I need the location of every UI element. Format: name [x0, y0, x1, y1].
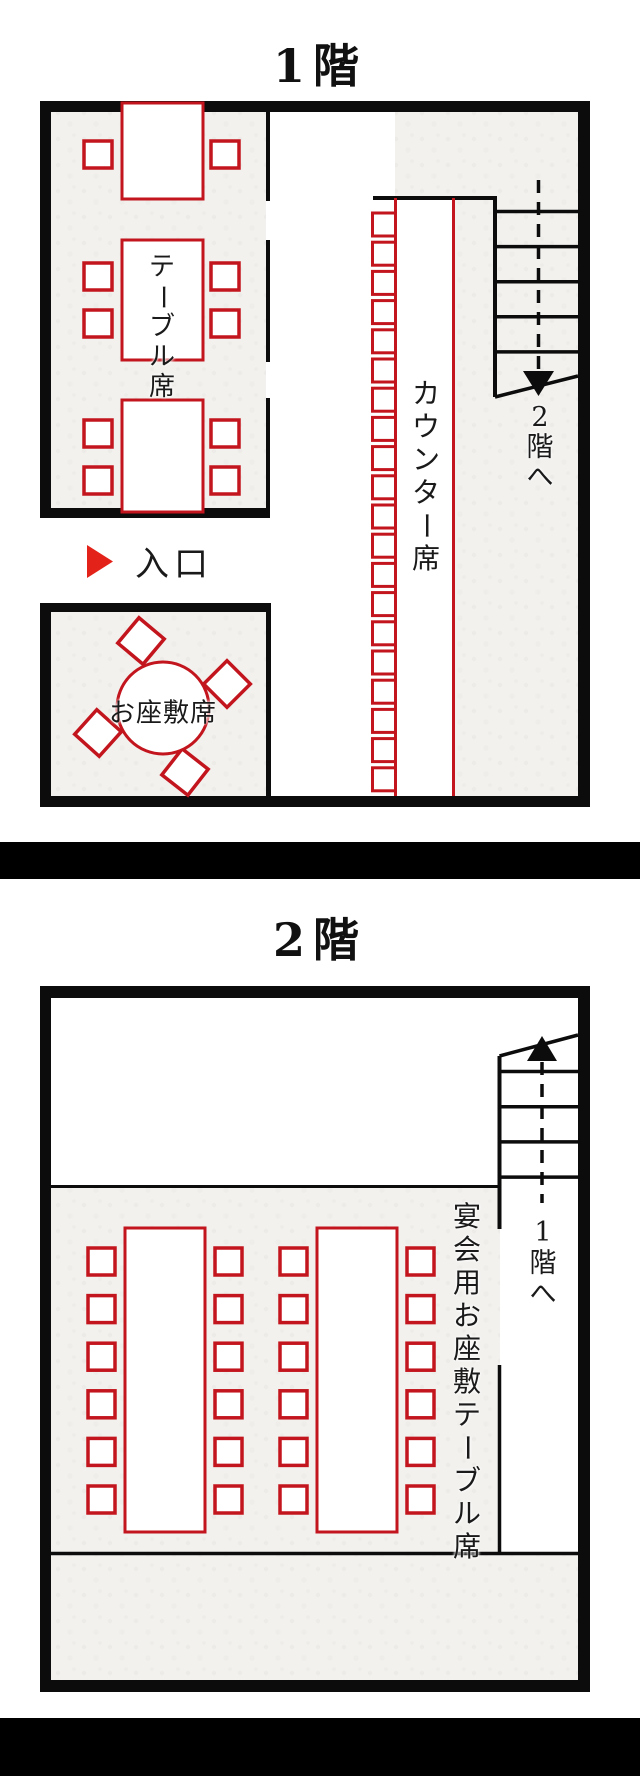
chair [211, 467, 239, 494]
chair [84, 141, 112, 168]
to-first-floor-label: 1階へ [525, 1217, 560, 1310]
dining-table [122, 103, 203, 199]
chair [215, 1296, 242, 1323]
counter-seat [373, 622, 396, 645]
tatami-seats-label: お座敷席 [109, 693, 217, 730]
chair [211, 420, 239, 447]
banquet-table [125, 1228, 205, 1532]
counter-seat [373, 651, 396, 674]
table-seats-label: テーブル席 [145, 252, 179, 402]
chair [88, 1391, 115, 1418]
floorplan-canvas [0, 0, 640, 1776]
chair [84, 263, 112, 290]
counter-seat [373, 388, 396, 411]
floor2-plan [40, 986, 590, 1692]
chair [88, 1248, 115, 1275]
chair [280, 1391, 307, 1418]
floor2-bottom-strip [51, 1555, 578, 1680]
chair [88, 1296, 115, 1323]
floor1-wall-right [578, 101, 590, 807]
entrance-label: 入口 [135, 537, 213, 586]
floor1-wall-bottom [40, 796, 590, 807]
chair [84, 310, 112, 337]
counter-seat [373, 505, 396, 528]
chair [280, 1343, 307, 1370]
tatami-room-top-wall [40, 603, 271, 612]
dining-table [122, 400, 203, 512]
chair [407, 1486, 434, 1513]
counter-seat [373, 447, 396, 470]
counter-seat [373, 271, 396, 294]
floor1-wall-left-upper [40, 101, 51, 518]
counter-seats-label: カウンター席 [408, 377, 444, 575]
floor1-wall-left-lower [40, 603, 51, 807]
counter-seat [373, 417, 396, 440]
chair [88, 1343, 115, 1370]
counter-seat [373, 739, 396, 762]
counter-seat [373, 242, 396, 265]
chair [407, 1343, 434, 1370]
chair [84, 420, 112, 447]
counter-seat [373, 563, 396, 586]
floor2-title: 2階 [0, 904, 640, 970]
chair [88, 1438, 115, 1465]
chair [407, 1248, 434, 1275]
banquet-table [317, 1228, 397, 1532]
floor2-wall-left [40, 986, 51, 1692]
banquet-tatami-label: 宴会用お座敷テーブル席 [449, 1200, 485, 1563]
footer-bar: ※図はイメージです。 [0, 1718, 640, 1776]
counter-seat [373, 213, 396, 236]
chair [215, 1486, 242, 1513]
counter-seat [373, 709, 396, 732]
counter-seat [373, 534, 396, 557]
chair [407, 1296, 434, 1323]
counter-seat [373, 593, 396, 616]
counter-seat [373, 359, 396, 382]
counter-seat [373, 330, 396, 353]
chair [211, 141, 239, 168]
chair [280, 1438, 307, 1465]
chair [211, 263, 239, 290]
chair [280, 1248, 307, 1275]
chair [211, 310, 239, 337]
restaurant-floorplan: 1階 テーブル席 カウンター席 2階へ 入口 お座敷席 2階 宴会用お座敷テーブ… [0, 0, 640, 1776]
floor1-title: 1階 [0, 30, 640, 96]
chair [215, 1248, 242, 1275]
chair [407, 1391, 434, 1418]
counter-seat [373, 680, 396, 703]
counter-seat [373, 476, 396, 499]
floor-divider-bar [0, 842, 640, 879]
chair [280, 1296, 307, 1323]
floor2-wall-bottom [40, 1680, 590, 1692]
tatami-room-right-wall [266, 609, 271, 799]
chair [407, 1438, 434, 1465]
counter-seat [373, 301, 396, 324]
chair [215, 1438, 242, 1465]
chair [84, 467, 112, 494]
floor2-wall-top [40, 986, 590, 998]
chair [215, 1343, 242, 1370]
chair [215, 1391, 242, 1418]
to-second-floor-label: 2階へ [522, 403, 557, 493]
chair [280, 1486, 307, 1513]
counter-seat [373, 768, 396, 791]
floor2-wall-right [578, 986, 590, 1692]
chair [88, 1486, 115, 1513]
